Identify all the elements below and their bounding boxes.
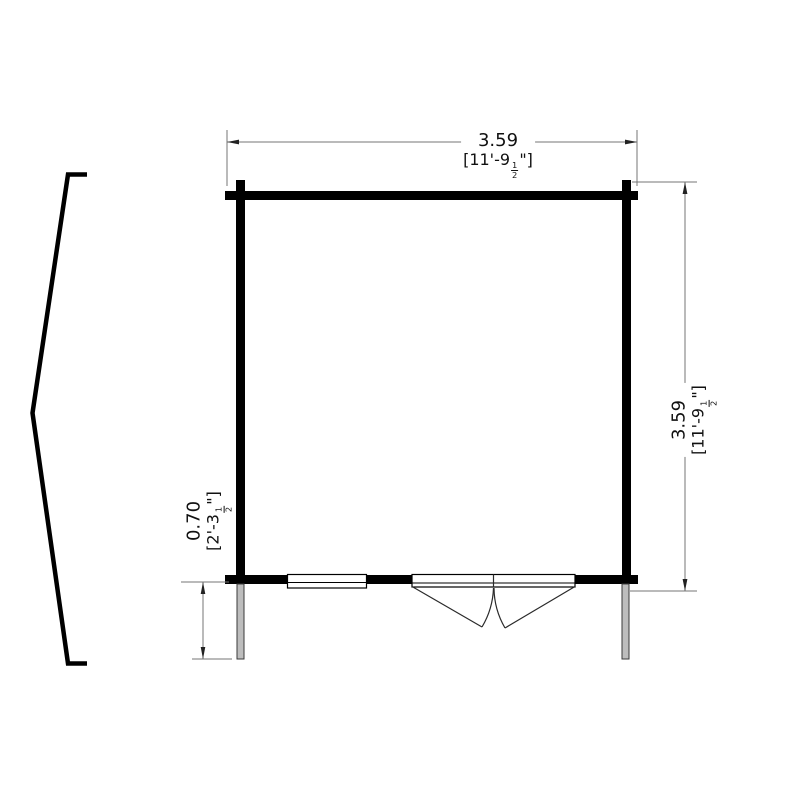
canopy-arrow-bottom xyxy=(201,647,206,659)
window-frame xyxy=(288,575,367,589)
left-canopy-post xyxy=(237,584,244,659)
roof-apex-profile xyxy=(33,175,88,664)
right-canopy-post xyxy=(622,584,629,659)
dimension-width xyxy=(227,130,637,186)
double-door xyxy=(412,575,575,629)
top-wall xyxy=(225,191,638,200)
bottom-wall-mid-segment xyxy=(367,575,413,584)
left-wall xyxy=(236,180,245,584)
depth-fraction: 12 xyxy=(700,400,718,407)
door-swing-arc-right xyxy=(494,588,505,628)
bottom-wall-left-segment xyxy=(225,575,288,584)
canopy-fraction: 12 xyxy=(215,506,233,513)
width-fraction: 12 xyxy=(511,161,518,179)
width-arrow-left xyxy=(227,140,239,145)
walls xyxy=(225,180,638,584)
depth-arrow-bottom xyxy=(683,579,688,591)
depth-imperial-value: [11'-912"] xyxy=(689,383,719,457)
floor-plan-canvas: 3.59 [11'-912"] 3.59 [11'-912"] 0.70 [2'… xyxy=(0,0,800,800)
window xyxy=(288,575,367,589)
canopy-imperial-value: [2'-312"] xyxy=(204,489,234,553)
width-arrow-right xyxy=(625,140,637,145)
width-metric-value: 3.59 xyxy=(461,131,535,150)
door-leaf-left xyxy=(412,587,482,628)
canopy-arrow-top xyxy=(201,582,206,594)
depth-arrow-top xyxy=(683,182,688,194)
canopy-posts xyxy=(237,584,629,659)
canopy-dimension-label: 0.70 [2'-312"] xyxy=(185,489,234,553)
width-dimension-label: 3.59 [11'-912"] xyxy=(461,131,535,180)
right-wall xyxy=(622,180,631,584)
door-leaf-right xyxy=(505,587,575,629)
width-imperial-value: [11'-912"] xyxy=(461,150,535,180)
bottom-wall-right-segment xyxy=(575,575,638,584)
dimension-canopy-depth xyxy=(181,582,232,659)
canopy-metric-value: 0.70 xyxy=(185,489,204,553)
door-swing-arc-left xyxy=(482,588,494,627)
depth-metric-value: 3.59 xyxy=(670,383,689,457)
depth-dimension-label: 3.59 [11'-912"] xyxy=(670,383,719,457)
